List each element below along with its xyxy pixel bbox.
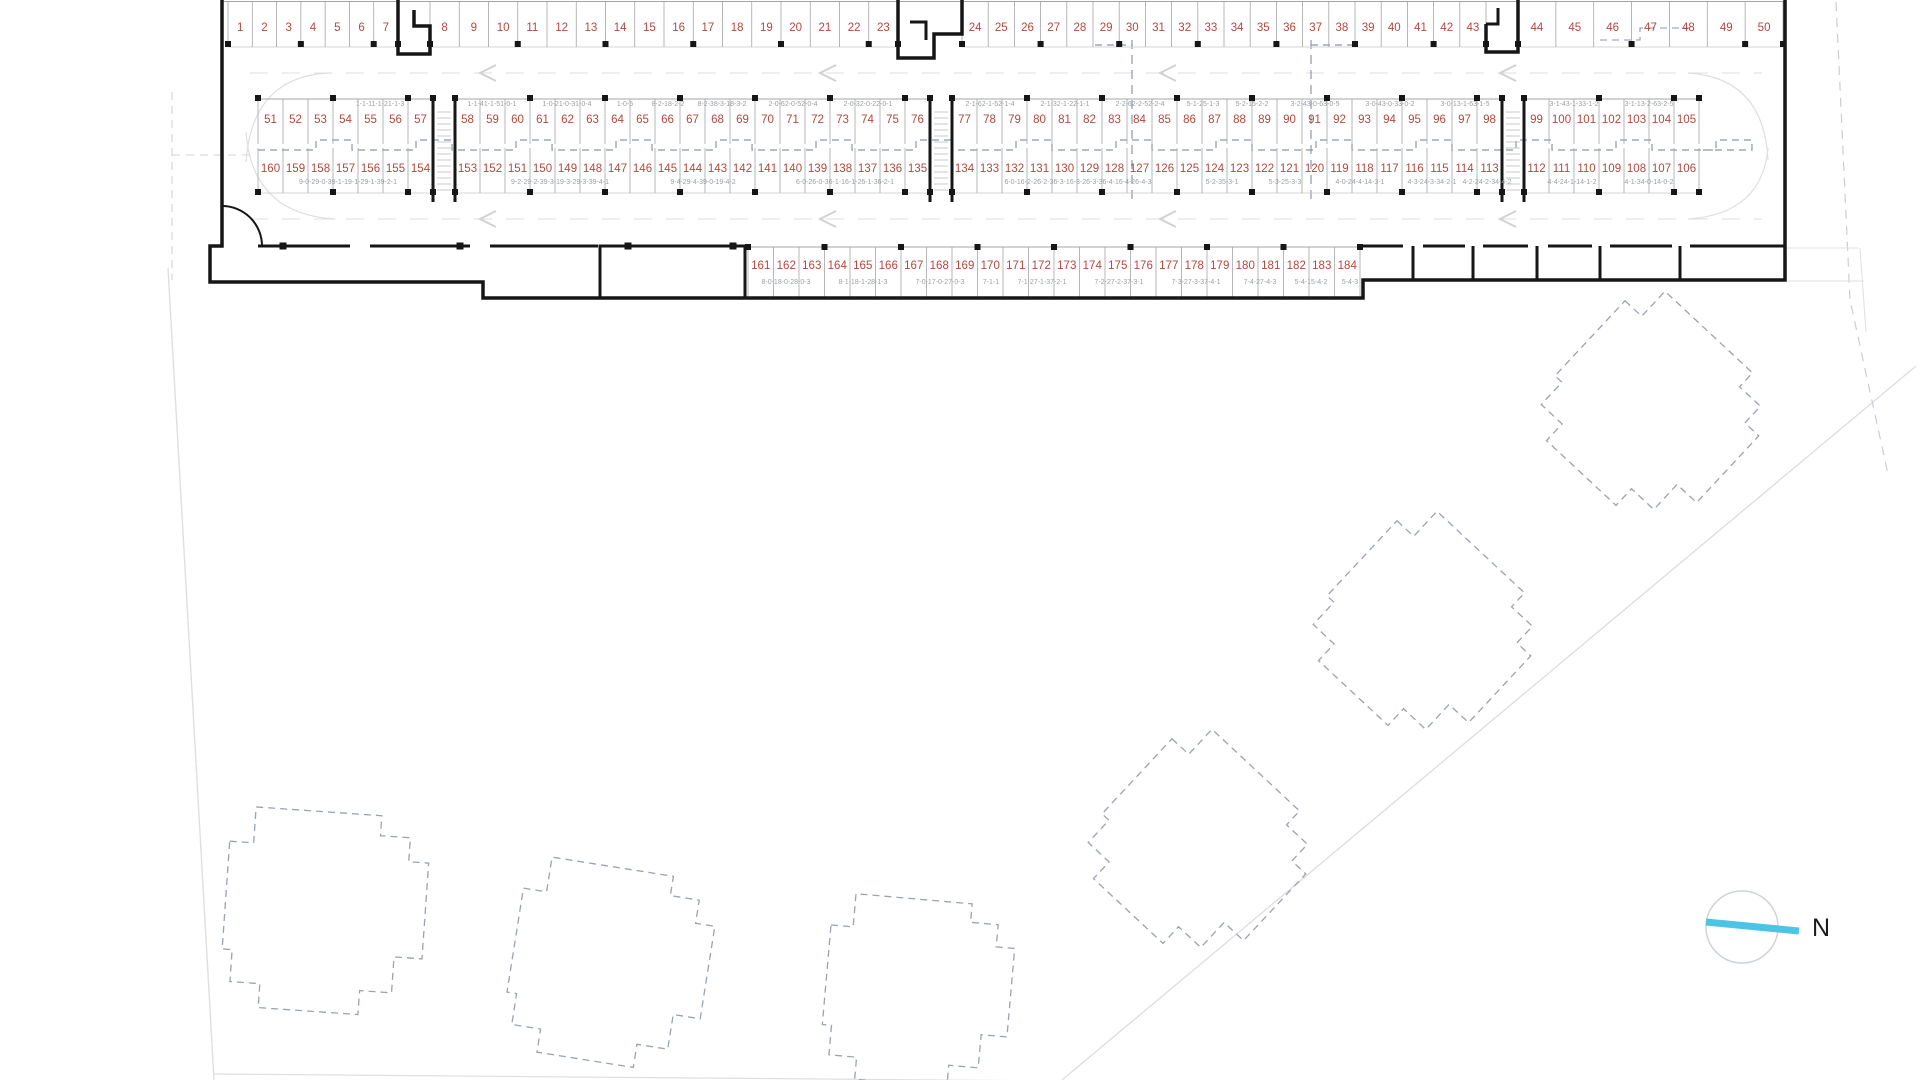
parking-space-number: 47 <box>1644 22 1657 34</box>
column-pillar <box>225 41 231 47</box>
column-pillar <box>1696 95 1702 101</box>
parking-space-number: 129 <box>1080 163 1099 175</box>
column-pillar <box>1099 189 1105 195</box>
unit-code: 2-1-32-1-22-1-1 <box>1040 101 1089 108</box>
unit-code: 3-0-43-0-33-0-2 <box>1365 101 1414 108</box>
dashed-building-footprint <box>1291 496 1560 765</box>
parking-space-number: 6 <box>358 22 364 34</box>
parking-space-numbers: 1234567891011121314151617181920212223242… <box>237 22 1771 272</box>
stair-core-c <box>1486 0 1518 52</box>
unit-code: 5-4-3 <box>1342 279 1358 286</box>
parking-space-number: 134 <box>955 163 975 175</box>
ramp-room <box>600 246 745 298</box>
parking-space-number: 11 <box>526 22 538 34</box>
parking-space-number: 58 <box>461 114 474 126</box>
parking-space-number: 23 <box>877 22 890 34</box>
column-pillar <box>1324 189 1330 195</box>
parking-space-number: 44 <box>1531 22 1544 34</box>
parking-space-number: 114 <box>1455 163 1474 175</box>
unit-code: 3-1-43-1-33-1-2 <box>1549 101 1598 108</box>
parking-space-number: 135 <box>908 163 927 175</box>
unit-code: 3-2-43-0-63-0-5 <box>1290 101 1339 108</box>
column-pillar <box>1696 189 1702 195</box>
parking-space-number: 51 <box>264 114 277 126</box>
parking-space-number: 71 <box>786 114 799 126</box>
parking-space-number: 27 <box>1047 22 1060 34</box>
parking-space-number: 7 <box>383 22 389 34</box>
column-pillar <box>975 244 981 250</box>
column-pillar <box>1671 189 1677 195</box>
parking-space-number: 10 <box>497 22 510 34</box>
unit-code: 7-2-27-2-37-3-1 <box>1094 279 1143 286</box>
parking-space-number: 113 <box>1480 163 1498 175</box>
parking-space-number: 14 <box>614 22 627 34</box>
unit-code: 1-0-21-0-31-0-4 <box>542 101 591 108</box>
parking-space-number: 76 <box>911 114 924 126</box>
stair-core-b <box>898 0 962 58</box>
parking-space-number: 160 <box>261 163 280 175</box>
column-pillar <box>1281 244 1287 250</box>
parking-space-number: 42 <box>1440 22 1453 34</box>
parking-space-number: 137 <box>858 163 877 175</box>
parking-space-number: 122 <box>1255 163 1274 175</box>
parking-space-number: 82 <box>1083 114 1096 126</box>
parking-space-number: 24 <box>969 22 982 34</box>
parking-space-number: 149 <box>558 163 577 175</box>
parking-space-number: 125 <box>1180 163 1199 175</box>
parking-space-number: 72 <box>811 114 824 126</box>
parking-space-number: 56 <box>389 114 402 126</box>
column-pillar <box>1249 189 1255 195</box>
parking-space-number: 45 <box>1568 22 1581 34</box>
parking-space-number: 157 <box>336 163 355 175</box>
column-pillar <box>1099 95 1105 101</box>
parking-space-number: 143 <box>708 163 727 175</box>
parking-space-number: 84 <box>1133 114 1146 126</box>
parking-space-number: 2 <box>261 22 267 34</box>
column-pillar <box>822 244 828 250</box>
unit-code: 2-2-62-2-52-2-4 <box>1115 101 1164 108</box>
parking-space-number: 104 <box>1652 114 1672 126</box>
column-pillar <box>255 95 261 101</box>
parking-space-number: 159 <box>286 163 305 175</box>
parking-space-number: 167 <box>904 260 923 272</box>
column-pillar <box>515 41 521 47</box>
parking-space-number: 74 <box>861 114 874 126</box>
column-pillar <box>1024 95 1030 101</box>
parking-space-number: 179 <box>1210 260 1229 272</box>
column-pillar <box>1195 41 1201 47</box>
column-pillar <box>902 189 908 195</box>
parking-space-number: 145 <box>658 163 677 175</box>
parking-space-number: 85 <box>1158 114 1171 126</box>
parking-space-number: 32 <box>1178 22 1191 34</box>
parking-space-number: 181 <box>1261 260 1280 272</box>
parking-space-number: 182 <box>1287 260 1306 272</box>
lane-corner-arc <box>1688 148 1768 219</box>
dashed-building-footprint <box>498 853 721 1076</box>
parking-space-number: 106 <box>1677 163 1696 175</box>
parking-space-number: 92 <box>1333 114 1346 126</box>
parking-space-number: 15 <box>643 22 656 34</box>
column-pillar <box>1051 244 1057 250</box>
column-pillar <box>1629 41 1635 47</box>
parking-space-number: 138 <box>833 163 852 175</box>
column-pillar <box>405 189 411 195</box>
parking-space-number: 177 <box>1159 260 1178 272</box>
floor-plan-svg: 1234567891011121314151617181920212223242… <box>0 0 1920 1080</box>
parking-space-number: 98 <box>1483 114 1496 126</box>
unit-code: 7-1-1 <box>983 279 999 286</box>
unit-code: 1-1-11-1-21-1-3 <box>356 101 405 108</box>
parking-space-number: 3 <box>286 22 292 34</box>
parking-space-number: 48 <box>1682 22 1695 34</box>
parking-space-number: 59 <box>486 114 499 126</box>
column-pillar <box>1116 41 1122 47</box>
column-pillar <box>827 189 833 195</box>
unit-code: 3-1-13-2-63-2-5 <box>1624 101 1673 108</box>
parking-space-number: 184 <box>1338 260 1358 272</box>
parking-space-number: 174 <box>1083 260 1103 272</box>
parking-space-number: 154 <box>411 163 431 175</box>
parking-space-number: 168 <box>930 260 949 272</box>
column-pillar <box>280 243 287 250</box>
unit-code: 5-2-35-3-1 <box>1206 179 1239 186</box>
column-pillar <box>330 95 336 101</box>
parking-space-number: 107 <box>1652 163 1671 175</box>
parking-space-number: 8 <box>441 22 447 34</box>
parking-space-number: 40 <box>1388 22 1401 34</box>
parking-space-number: 53 <box>314 114 327 126</box>
parking-space-number: 100 <box>1552 114 1571 126</box>
column-pillar <box>1352 41 1358 47</box>
parking-space-number: 121 <box>1280 163 1299 175</box>
unit-code: 2-1-62-1-52-1-4 <box>965 101 1014 108</box>
unit-code: 8-1-18-1-28-1-3 <box>838 279 887 286</box>
north-label: N <box>1812 914 1830 942</box>
upper-floor-footprints <box>218 276 1787 1080</box>
stair-core-b-inner <box>910 22 926 40</box>
parking-space-number: 88 <box>1233 114 1246 126</box>
unit-code: 4-3-24-3-34-2-1 <box>1407 179 1456 186</box>
parking-space-number: 34 <box>1231 22 1244 34</box>
column-pillar <box>902 95 908 101</box>
unit-code: 5-1-25-1-3 <box>1187 101 1220 108</box>
column-pillar <box>827 95 833 101</box>
unit-code: 8-2-18-2-2 <box>652 101 685 108</box>
parking-space-number: 68 <box>711 114 724 126</box>
parking-space-number: 39 <box>1362 22 1375 34</box>
unit-code: 1-1-41-1-51-0-1 <box>467 101 516 108</box>
parking-space-number: 83 <box>1108 114 1121 126</box>
parking-space-number: 91 <box>1308 114 1321 126</box>
lane-corner-arc <box>246 132 335 219</box>
parking-space-number: 118 <box>1355 163 1373 175</box>
unit-code: 7-1-27-1-37-2-1 <box>1017 279 1066 286</box>
parking-space-number: 49 <box>1720 22 1733 34</box>
parking-space-number: 136 <box>883 163 902 175</box>
unit-code: 9-0-29-0-39-1-19-1-29-1-39-2-1 <box>299 179 397 186</box>
parking-space-number: 165 <box>853 260 872 272</box>
gate-swing-arc <box>222 206 262 246</box>
parking-space-number: 16 <box>672 22 685 34</box>
parking-space-number: 130 <box>1055 163 1074 175</box>
unit-code: 7-0-17-0-27-0-3 <box>915 279 964 286</box>
parking-space-number: 151 <box>508 163 527 175</box>
parking-space-number: 163 <box>802 260 821 272</box>
parking-space-number: 69 <box>736 114 749 126</box>
stair-core-c-inner <box>1486 8 1498 24</box>
parking-space-number: 173 <box>1057 260 1076 272</box>
parking-space-number: 66 <box>661 114 674 126</box>
parking-space-number: 110 <box>1577 163 1595 175</box>
parking-space-number: 123 <box>1230 163 1249 175</box>
column-pillar <box>1742 41 1748 47</box>
slab-stepped-dash <box>258 140 1752 150</box>
parking-space-number: 5 <box>334 22 340 34</box>
unit-code: 9-4-29-4-39-0-19-4-2 <box>670 179 735 186</box>
parking-space-number: 142 <box>733 163 752 175</box>
parking-space-number: 12 <box>555 22 568 34</box>
parking-space-number: 162 <box>777 260 796 272</box>
parking-space-number: 170 <box>981 260 1000 272</box>
stair-core-a <box>398 0 430 54</box>
parking-space-number: 140 <box>783 163 802 175</box>
column-pillar <box>298 41 304 47</box>
parking-space-number: 169 <box>955 260 974 272</box>
parking-space-number: 101 <box>1577 114 1596 126</box>
parking-space-number: 22 <box>848 22 861 34</box>
parking-space-number: 126 <box>1155 163 1174 175</box>
parking-space-number: 70 <box>761 114 774 126</box>
parking-space-number: 54 <box>339 114 352 126</box>
column-pillar <box>1024 189 1030 195</box>
parking-space-number: 108 <box>1627 163 1646 175</box>
unit-code: 2-0-32-0-22-0-1 <box>843 101 892 108</box>
parking-space-number: 43 <box>1467 22 1480 34</box>
parking-space-number: 52 <box>289 114 302 126</box>
parking-space-number: 33 <box>1205 22 1218 34</box>
unit-code: 7-3-27-3-37-4-1 <box>1171 279 1220 286</box>
column-pillar <box>1596 189 1602 195</box>
parking-space-number: 150 <box>533 163 552 175</box>
parking-space-number: 89 <box>1258 114 1271 126</box>
parking-space-number: 86 <box>1183 114 1196 126</box>
parking-space-number: 109 <box>1602 163 1621 175</box>
parking-space-number: 111 <box>1553 163 1570 175</box>
parking-space-number: 105 <box>1677 114 1696 126</box>
parking-space-number: 116 <box>1405 163 1423 175</box>
parking-space-number: 80 <box>1033 114 1046 126</box>
unit-code: 9-2-29-2-39-3-19-3-29-3-39-4-1 <box>511 179 609 186</box>
site-line-bottom <box>214 1074 1062 1080</box>
column-pillar <box>690 41 696 47</box>
column-pillar <box>527 189 533 195</box>
parking-space-number: 31 <box>1152 22 1165 34</box>
parking-space-number: 103 <box>1627 114 1646 126</box>
parking-space-number: 148 <box>583 163 602 175</box>
parking-space-number: 131 <box>1030 163 1049 175</box>
column-pillar <box>677 189 683 195</box>
parking-space-number: 55 <box>364 114 377 126</box>
parking-space-number: 1 <box>237 22 243 34</box>
column-pillar <box>778 41 784 47</box>
parking-space-number: 79 <box>1008 114 1021 126</box>
parking-space-number: 29 <box>1100 22 1113 34</box>
column-pillar <box>405 95 411 101</box>
parking-space-number: 147 <box>608 163 627 175</box>
dashed-building-footprint <box>1066 714 1335 983</box>
column-pillar <box>603 41 609 47</box>
drive-aisle-markings <box>246 65 1768 227</box>
compass-needle-icon <box>1706 922 1799 931</box>
parking-space-number: 156 <box>361 163 380 175</box>
parking-space-number: 141 <box>758 163 777 175</box>
column-pillar <box>1399 189 1405 195</box>
column-pillar <box>457 243 464 250</box>
parking-space-number: 94 <box>1383 114 1396 126</box>
parking-space-number: 152 <box>483 163 502 175</box>
parking-space-number: 128 <box>1105 163 1124 175</box>
parking-space-number: 146 <box>633 163 652 175</box>
parking-space-number: 176 <box>1134 260 1153 272</box>
column-pillar <box>602 95 608 101</box>
unit-code: 5-3-25-3-3 <box>1269 179 1302 186</box>
parking-space-number: 133 <box>980 163 999 175</box>
column-pillar <box>1273 41 1279 47</box>
parking-space-number: 30 <box>1126 22 1139 34</box>
parking-space-number: 153 <box>458 163 477 175</box>
parking-space-number: 81 <box>1058 114 1071 126</box>
parking-space-number: 132 <box>1005 163 1024 175</box>
column-pillar <box>1204 244 1210 250</box>
unit-code: 1-0-5 <box>617 101 633 108</box>
parking-space-number: 38 <box>1336 22 1349 34</box>
parking-space-number: 139 <box>808 163 827 175</box>
column-pillar <box>371 41 377 47</box>
parking-space-number: 75 <box>886 114 899 126</box>
site-line-left <box>168 268 214 1080</box>
column-pillar <box>959 41 965 47</box>
dashed-building-footprint <box>818 892 1018 1080</box>
parking-space-number: 20 <box>789 22 802 34</box>
column-pillar <box>330 189 336 195</box>
parking-space-number: 178 <box>1185 260 1204 272</box>
parking-space-number: 175 <box>1108 260 1127 272</box>
unit-code: 4-2-24-2-34-4-2 <box>1462 179 1511 186</box>
column-pillar <box>527 95 533 101</box>
unit-code: 5-2-15-2-2 <box>1236 101 1269 108</box>
unit-code: 6-0-16-2-26-2-36-3-16-3-26-3-36-4-16-4-2… <box>1004 179 1151 186</box>
parking-space-number: 4 <box>310 22 317 34</box>
unit-code: 2-0-62-0-52-0-4 <box>768 101 817 108</box>
parking-space-number: 90 <box>1283 114 1296 126</box>
parking-space-number: 61 <box>536 114 549 126</box>
unit-code: 8-0-18-0-28-0-3 <box>761 279 810 286</box>
unit-code: 4-1-34-0-14-0-2 <box>1624 179 1673 186</box>
parking-space-number: 73 <box>836 114 849 126</box>
north-compass: N <box>1706 891 1830 963</box>
dashed-building-footprint <box>1519 276 1788 545</box>
parking-space-number: 166 <box>879 260 898 272</box>
unit-code: 4-0-24-4-14-3-1 <box>1335 179 1384 186</box>
parking-space-number: 120 <box>1305 163 1324 175</box>
parking-space-number: 41 <box>1414 22 1427 34</box>
site-line-diagonal <box>1062 366 1916 1080</box>
parking-space-number: 87 <box>1208 114 1221 126</box>
parking-space-number: 171 <box>1006 260 1025 272</box>
parking-space-number: 127 <box>1130 163 1149 175</box>
unit-code: 7-4-27-4-3 <box>1244 279 1277 286</box>
parking-space-number: 93 <box>1358 114 1371 126</box>
unit-code: 6-0-26-0-36-1-16-1-26-1-36-2-1 <box>796 179 894 186</box>
parking-space-number: 62 <box>561 114 574 126</box>
column-pillar <box>1038 41 1044 47</box>
unit-code: 3-0-13-1-63-1-5 <box>1440 101 1489 108</box>
column-pillar <box>752 95 758 101</box>
column-pillar <box>1174 95 1180 101</box>
parking-space-number: 144 <box>683 163 703 175</box>
column-pillar <box>1174 189 1180 195</box>
parking-space-number: 99 <box>1530 114 1543 126</box>
column-pillar <box>1431 41 1437 47</box>
parking-space-number: 77 <box>958 114 971 126</box>
parking-space-number: 18 <box>731 22 744 34</box>
parking-space-number: 37 <box>1309 22 1322 34</box>
column-pillar <box>866 41 872 47</box>
unit-code: 4-4-24-1-14-1-2 <box>1547 179 1596 186</box>
parking-space-number: 13 <box>584 22 597 34</box>
parking-space-number: 36 <box>1283 22 1296 34</box>
parking-space-number: 67 <box>686 114 699 126</box>
floor-plan-page: 1234567891011121314151617181920212223242… <box>0 0 1920 1080</box>
parking-space-number: 124 <box>1205 163 1225 175</box>
column-pillar <box>1357 244 1363 250</box>
parking-space-number: 26 <box>1021 22 1034 34</box>
unit-code: 5-4-15-4-2 <box>1295 279 1328 286</box>
parking-space-number: 183 <box>1312 260 1331 272</box>
parking-space-number: 102 <box>1602 114 1621 126</box>
column-pillar <box>1128 244 1134 250</box>
parking-space-number: 164 <box>828 260 848 272</box>
column-pillar <box>1474 189 1480 195</box>
parking-space-number: 35 <box>1257 22 1270 34</box>
parking-space-number: 64 <box>611 114 624 126</box>
parking-space-number: 158 <box>311 163 330 175</box>
parking-space-number: 46 <box>1606 22 1619 34</box>
parking-space-number: 65 <box>636 114 649 126</box>
parking-space-number: 63 <box>586 114 599 126</box>
parking-space-number: 117 <box>1380 163 1398 175</box>
parking-space-number: 97 <box>1458 114 1471 126</box>
parking-space-number: 115 <box>1430 163 1448 175</box>
unit-code: 8-2-38-3-18-3-2 <box>697 101 746 108</box>
parking-space-number: 17 <box>701 22 714 34</box>
parking-space-number: 172 <box>1032 260 1051 272</box>
parking-space-number: 9 <box>471 22 477 34</box>
parking-space-number: 96 <box>1433 114 1446 126</box>
parking-space-number: 19 <box>760 22 773 34</box>
parking-space-number: 25 <box>995 22 1008 34</box>
kerb-line <box>1860 248 1866 332</box>
parking-space-number: 161 <box>751 260 770 272</box>
parking-space-number: 180 <box>1236 260 1255 272</box>
column-pillar <box>255 189 261 195</box>
parking-space-number: 112 <box>1527 163 1545 175</box>
column-pillar <box>898 244 904 250</box>
parking-space-number: 57 <box>414 114 427 126</box>
parking-space-number: 21 <box>818 22 831 34</box>
